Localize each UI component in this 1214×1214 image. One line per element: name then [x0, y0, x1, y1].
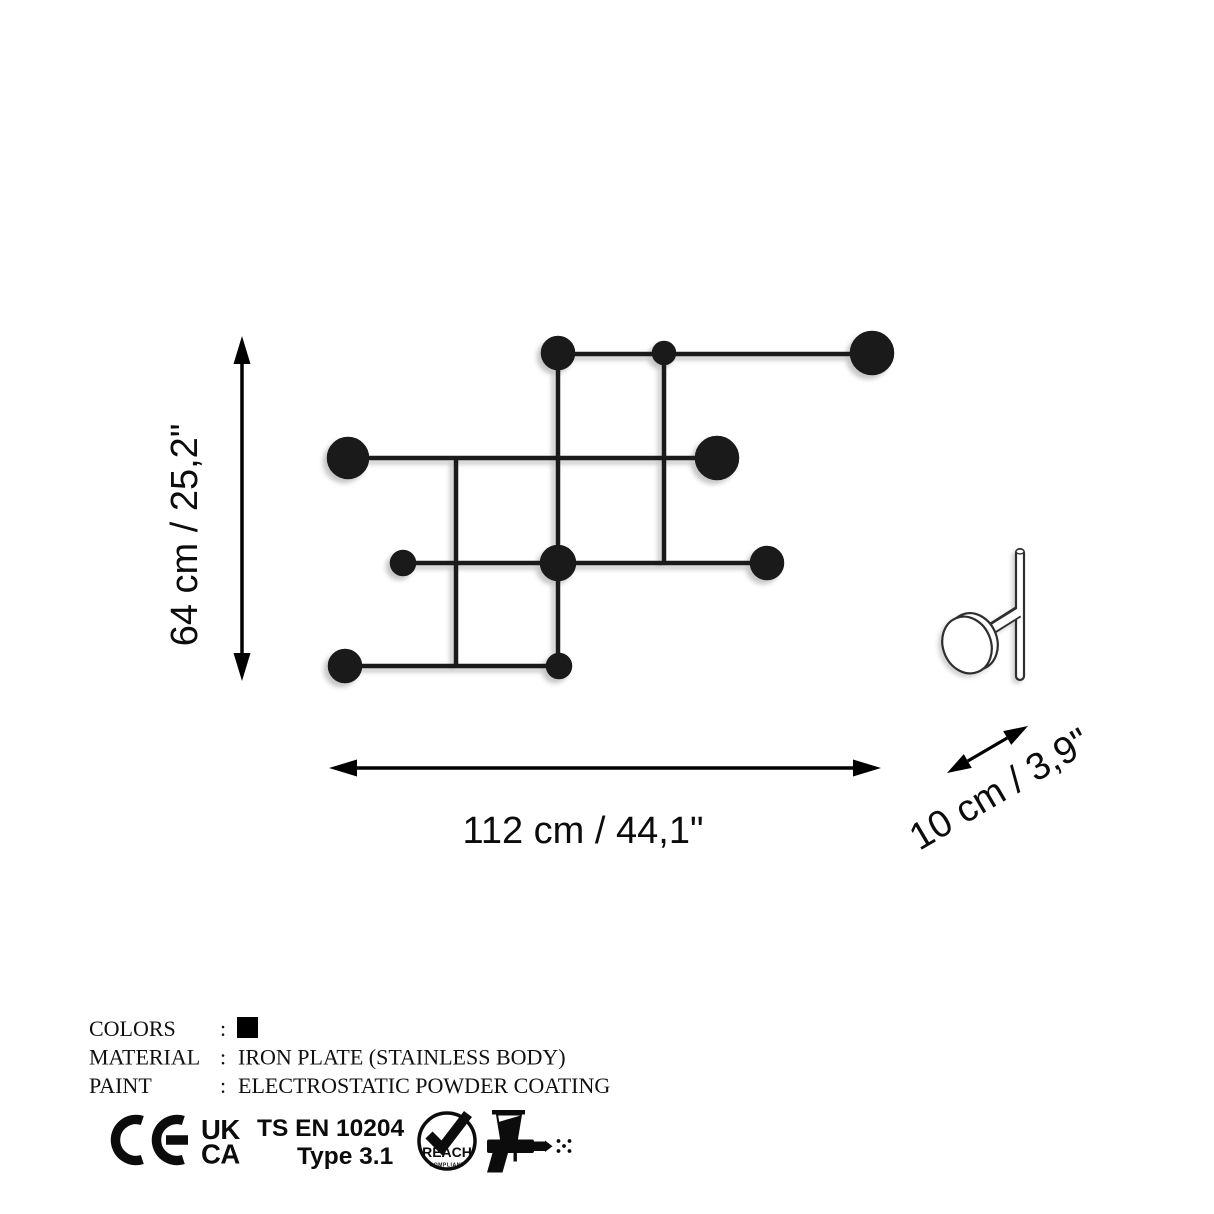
reach-label: REACH	[422, 1144, 472, 1160]
hook-disc-face	[934, 609, 1000, 681]
arrow-right-icon	[853, 760, 881, 777]
standard-line1: TS EN 10204	[257, 1115, 404, 1142]
arrow-up-icon	[234, 336, 251, 364]
spray-nozzle	[534, 1142, 545, 1152]
spray-trigger	[514, 1153, 517, 1162]
reach-sublabel: COMPLIANT	[429, 1163, 465, 1169]
spray-dots	[557, 1139, 572, 1153]
diagram-canvas: 64 cm / 25,2" 112 cm / 44,1" 10 cm / 3,9…	[0, 0, 1214, 1214]
arrow-up-right-icon	[1003, 726, 1028, 745]
spec-colon: :	[220, 1045, 226, 1070]
spec-label: MATERIAL	[89, 1045, 200, 1070]
ukca-mark: UK CA	[201, 1114, 240, 1170]
arrow-left-icon	[329, 760, 357, 777]
standard-text: TS EN 10204 Type 3.1	[257, 1115, 404, 1170]
arrow-down-left-icon	[947, 754, 972, 773]
spec-value: IRON PLATE (STAINLESS BODY)	[238, 1045, 566, 1070]
height-dimension-label: 64 cm / 25,2"	[164, 424, 206, 647]
reach-badge-icon: REACH COMPLIANT	[419, 1113, 475, 1169]
arrow-down-icon	[234, 653, 251, 681]
hook-dot	[392, 552, 414, 574]
spray-body	[487, 1140, 534, 1154]
ukca-line2: CA	[201, 1139, 240, 1170]
hook-dot	[543, 338, 573, 368]
hook-dot	[697, 438, 737, 478]
ce-mark-icon	[115, 1120, 188, 1161]
spec-label: PAINT	[89, 1073, 152, 1098]
hook-tube-cap	[1016, 549, 1024, 554]
coat-rack-front-view	[329, 333, 892, 681]
spec-colon: :	[220, 1016, 226, 1041]
spec-value: ELECTROSTATIC POWDER COATING	[238, 1073, 610, 1098]
specs-table: COLORS : MATERIAL : IRON PLATE (STAINLES…	[89, 1016, 610, 1098]
spray-tip	[545, 1141, 553, 1153]
hook-side-view	[934, 549, 1024, 681]
height-dimension: 64 cm / 25,2"	[164, 336, 251, 681]
hook-dot	[548, 655, 570, 677]
spray-gun-icon	[487, 1110, 571, 1173]
depth-dimension-line	[968, 738, 1007, 761]
width-dimension: 112 cm / 44,1"	[329, 760, 881, 853]
hook-dot	[852, 333, 892, 373]
depth-dimension: 10 cm / 3,9"	[902, 720, 1097, 858]
spray-handle	[487, 1153, 508, 1173]
spec-label: COLORS	[89, 1016, 176, 1041]
hook-dot	[654, 343, 674, 363]
hook-dot	[330, 651, 360, 681]
product-dimension-sheet: 64 cm / 25,2" 112 cm / 44,1" 10 cm / 3,9…	[0, 0, 1214, 1214]
width-dimension-label: 112 cm / 44,1"	[463, 810, 704, 852]
hook-dot	[329, 439, 367, 477]
spec-colon: :	[220, 1073, 226, 1098]
hook-dot	[542, 547, 574, 579]
hook-dot	[752, 548, 782, 578]
standard-line2: Type 3.1	[297, 1143, 393, 1170]
color-swatch	[237, 1017, 258, 1038]
ce-letter-c	[115, 1120, 142, 1161]
